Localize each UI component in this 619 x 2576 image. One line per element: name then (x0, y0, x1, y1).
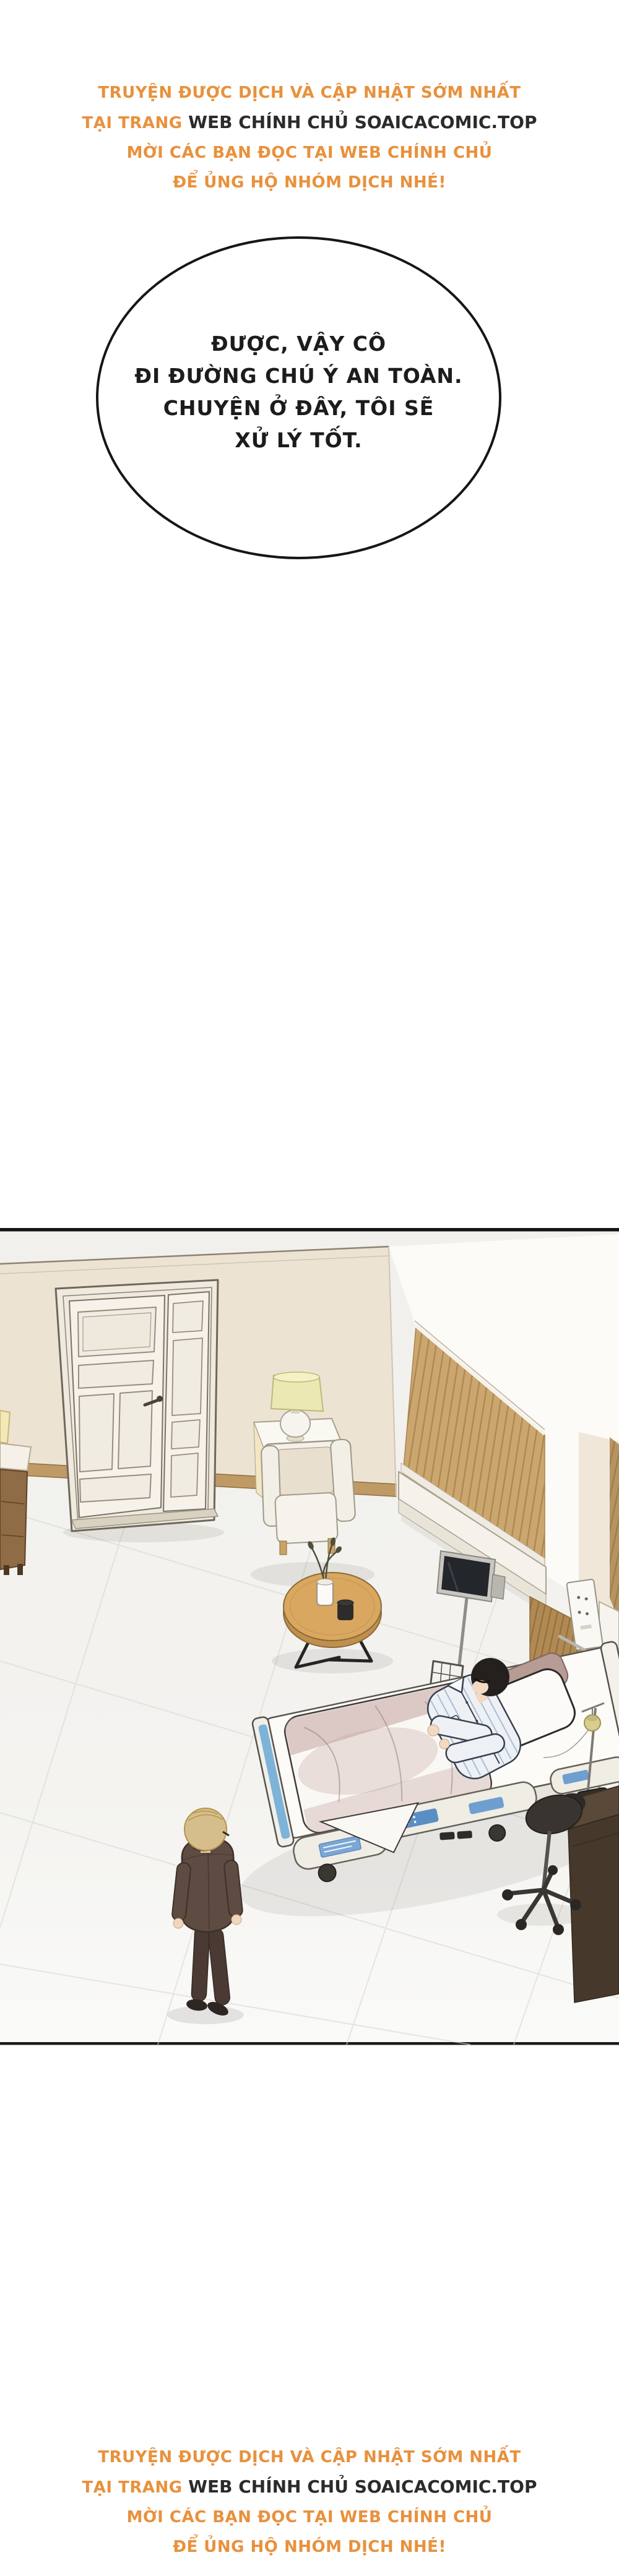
hand (173, 1918, 183, 1928)
scene-top-border (0, 1228, 619, 1232)
door-right-leaf (163, 1292, 209, 1511)
bubble-text-line-2: ĐI ĐƯỜNG CHÚ Ý AN TOÀN. (134, 360, 462, 392)
cabinet-lamp (0, 1410, 10, 1443)
banner-line-4: ĐỂ ỦNG HỘ NHÓM DỊCH NHÉ! (0, 2532, 619, 2562)
bed-pedal (439, 1832, 455, 1840)
scene-bottom-border (0, 2042, 619, 2045)
banner-line-2: TẠI TRANG WEB CHÍNH CHỦ SOAICACOMIC.TOP (0, 2472, 619, 2502)
banner-line-3: MỜI CÁC BẠN ĐỌC TẠI WEB CHÍNH CHỦ (0, 138, 619, 168)
bed-pedal (457, 1831, 472, 1839)
banner-bottom: TRUYỆN ĐƯỢC DỊCH VÀ CẬP NHẬT SỚM NHẤT TẠ… (0, 2442, 619, 2562)
comic-page: TRUYỆN ĐƯỢC DỊCH VÀ CẬP NHẬT SỚM NHẤT TẠ… (0, 0, 619, 2576)
patient-head (471, 1658, 509, 1696)
bubble-text-line-3: CHUYỆN Ở ĐÂY, TÔI SẼ (163, 392, 435, 424)
speech-bubble: ĐƯỢC, VẬY CÔ ĐI ĐƯỜNG CHÚ Ý AN TOÀN. CHU… (96, 236, 501, 559)
banner-line-2-prefix: TẠI TRANG (82, 114, 183, 132)
hospital-room-illustration (0, 1228, 619, 2051)
bubble-text-line-1: ĐƯỢC, VẬY CÔ (211, 328, 386, 360)
banner-line-3: MỜI CÁC BẠN ĐỌC TẠI WEB CHÍNH CHỦ (0, 2502, 619, 2532)
banner-line-2: TẠI TRANG WEB CHÍNH CHỦ SOAICACOMIC.TOP (0, 108, 619, 138)
hand (232, 1915, 241, 1925)
bubble-text-line-4: XỬ LÝ TỐT. (235, 424, 362, 457)
banner-line-4: ĐỂ ỦNG HỘ NHÓM DỊCH NHÉ! (0, 168, 619, 197)
banner-top: TRUYỆN ĐƯỢC DỊCH VÀ CẬP NHẬT SỚM NHẤT TẠ… (0, 78, 619, 197)
site-url-text: WEB CHÍNH CHỦ SOAICACOMIC.TOP (188, 2476, 537, 2497)
banner-line-1: TRUYỆN ĐƯỢC DỊCH VÀ CẬP NHẬT SỚM NHẤT (0, 78, 619, 108)
coffee-cup (337, 1600, 353, 1620)
door (56, 1280, 218, 1531)
banner-line-1: TRUYỆN ĐƯỢC DỊCH VÀ CẬP NHẬT SỚM NHẤT (0, 2442, 619, 2472)
site-url-text: WEB CHÍNH CHỦ SOAICACOMIC.TOP (188, 112, 537, 132)
door-left-leaf (69, 1295, 165, 1518)
banner-line-2-prefix: TẠI TRANG (82, 2478, 183, 2497)
